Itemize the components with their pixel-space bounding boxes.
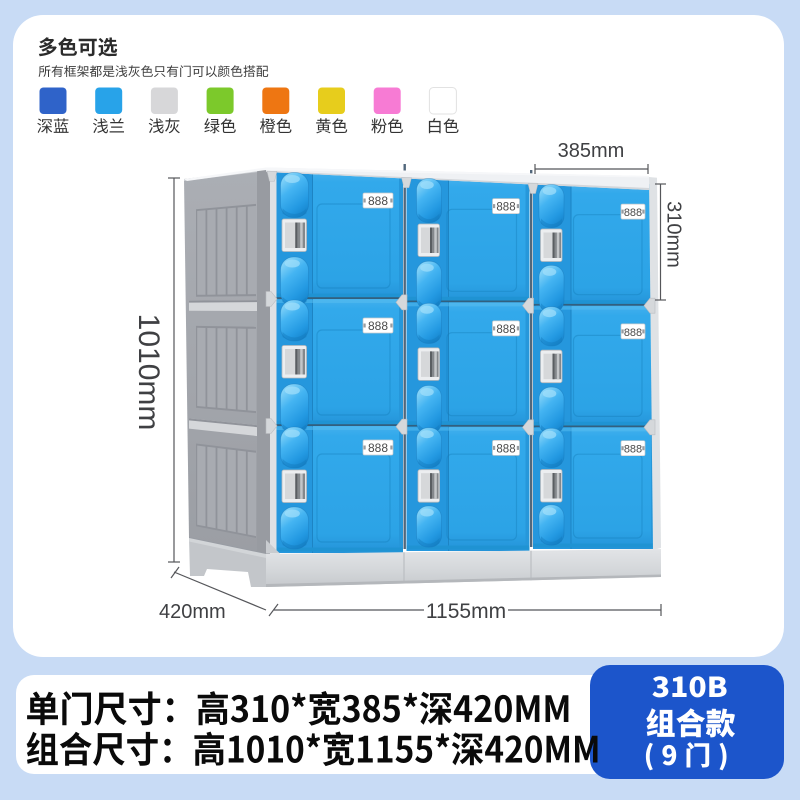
- svg-text:888: 888: [368, 194, 388, 208]
- svg-text:888: 888: [368, 441, 388, 455]
- svg-text:1010mm: 1010mm: [132, 314, 165, 431]
- svg-text:888: 888: [624, 444, 642, 456]
- svg-text:420mm: 420mm: [159, 601, 226, 623]
- svg-text:888: 888: [624, 207, 642, 219]
- svg-text:1155mm: 1155mm: [426, 600, 506, 623]
- svg-text:888: 888: [496, 202, 515, 214]
- svg-text:888: 888: [496, 443, 515, 455]
- svg-text:888: 888: [368, 319, 388, 333]
- svg-text:385mm: 385mm: [558, 140, 625, 162]
- svg-text:310mm: 310mm: [663, 201, 685, 268]
- svg-text:888: 888: [496, 324, 515, 336]
- svg-text:888: 888: [624, 327, 642, 339]
